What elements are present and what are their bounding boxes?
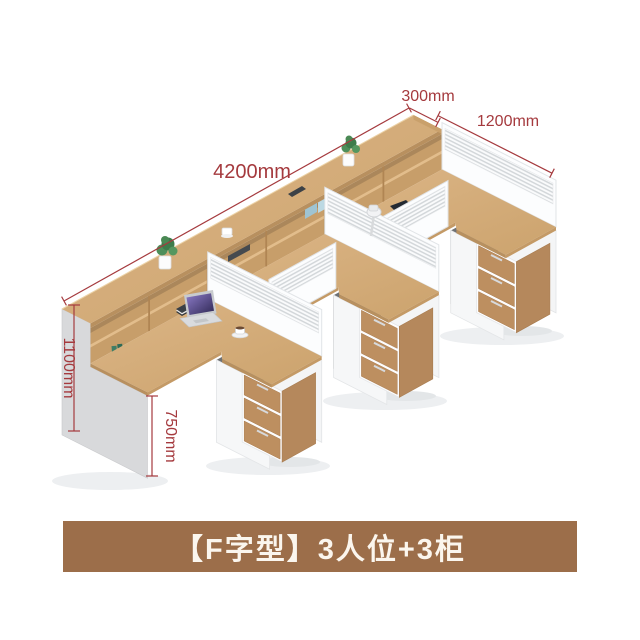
caption-text: 【F字型】3人位+3柜 bbox=[174, 526, 466, 568]
counter-mug bbox=[221, 228, 233, 238]
dim-label-4200: 4200mm bbox=[213, 161, 291, 183]
workstation-illustration: 4200mm 300mm 1200mm 1100mm 750mm bbox=[0, 0, 640, 520]
dim-label-300: 300mm bbox=[401, 88, 454, 105]
dimension-750: 750mm bbox=[146, 396, 179, 476]
dim-label-750: 750mm bbox=[162, 409, 179, 462]
caption-banner: 【F字型】3人位+3柜 bbox=[63, 521, 577, 572]
product-image: 4200mm 300mm 1200mm 1100mm 750mm 【F字型】3人… bbox=[0, 0, 640, 640]
dim-label-1100: 1100mm bbox=[60, 337, 77, 398]
dim-label-1200: 1200mm bbox=[477, 113, 539, 130]
